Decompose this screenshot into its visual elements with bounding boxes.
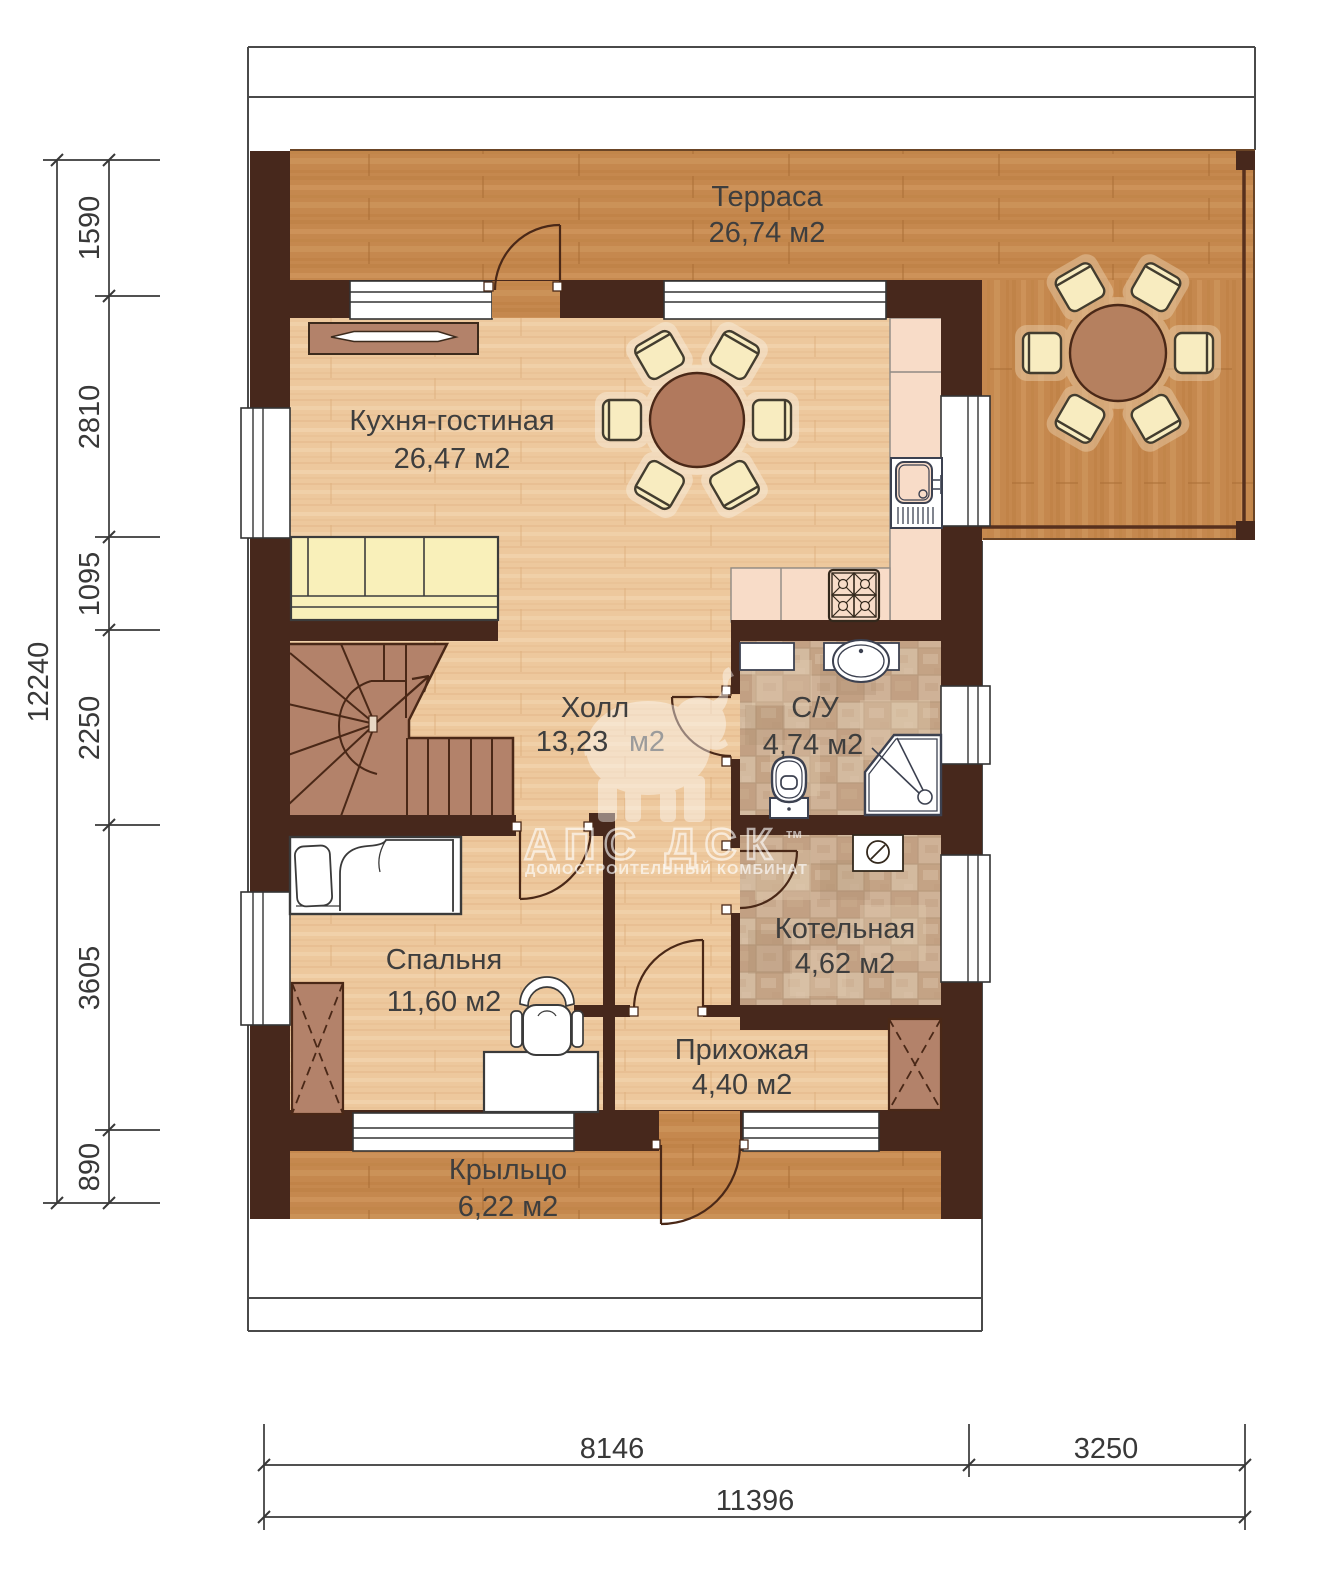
svg-text:Холл: Холл [561,692,629,724]
svg-text:26,74 м2: 26,74 м2 [709,217,826,249]
svg-text:12240: 12240 [23,642,55,723]
svg-text:3605: 3605 [74,946,106,1011]
svg-text:Котельная: Котельная [775,913,915,945]
svg-text:тм: тм [786,826,802,841]
svg-text:1095: 1095 [74,552,106,617]
svg-text:4,74 м2: 4,74 м2 [763,729,864,761]
svg-text:11,60 м2: 11,60 м2 [387,986,502,1018]
svg-text:1590: 1590 [74,196,106,261]
svg-text:8146: 8146 [580,1433,645,1465]
svg-text:13,23: 13,23 [536,726,609,758]
svg-text:6,22 м2: 6,22 м2 [458,1191,559,1223]
svg-text:Прихожая: Прихожая [675,1034,809,1066]
svg-text:Крыльцо: Крыльцо [449,1154,567,1186]
svg-text:890: 890 [74,1143,106,1191]
svg-text:11396: 11396 [716,1485,795,1517]
svg-text:26,47 м2: 26,47 м2 [394,443,511,475]
svg-text:Спальня: Спальня [386,944,503,976]
svg-text:4,62 м2: 4,62 м2 [795,948,896,980]
svg-text:2810: 2810 [74,385,106,450]
svg-text:м2: м2 [629,726,665,758]
svg-text:2250: 2250 [74,696,106,761]
svg-text:Терраса: Терраса [711,181,823,213]
svg-text:ДОМОСТРОИТЕЛЬНЫЙ КОМБИНАТ: ДОМОСТРОИТЕЛЬНЫЙ КОМБИНАТ [525,860,808,878]
svg-text:4,40 м2: 4,40 м2 [692,1069,793,1101]
svg-text:3250: 3250 [1074,1433,1139,1465]
svg-text:С/У: С/У [791,692,839,724]
svg-text:Кухня-гостиная: Кухня-гостиная [349,405,554,437]
